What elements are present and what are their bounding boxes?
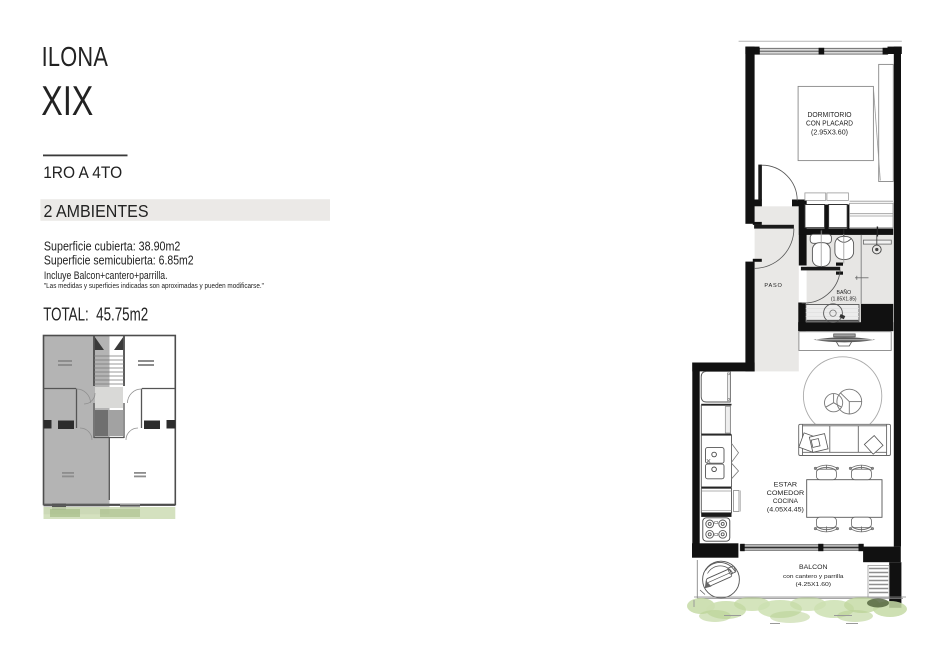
svg-text:2 AMBIENTES: 2 AMBIENTES — [44, 201, 149, 221]
svg-text:XIX: XIX — [41, 77, 93, 124]
svg-text:CON PLACARD: CON PLACARD — [806, 121, 853, 128]
svg-text:ILONA: ILONA — [42, 41, 109, 72]
svg-text:1RO A 4TO: 1RO A 4TO — [43, 163, 122, 182]
svg-text:"Las medidas y superficies ind: "Las medidas y superficies indicadas son… — [44, 281, 264, 290]
svg-text:ESTAR: ESTAR — [774, 482, 798, 489]
svg-text:DORMITORIO: DORMITORIO — [808, 112, 853, 119]
svg-text:BALCON: BALCON — [799, 564, 828, 571]
svg-text:(2.95X3.60): (2.95X3.60) — [811, 130, 848, 137]
svg-text:Superficie semicubierta: 6.85m: Superficie semicubierta: 6.85m2 — [44, 252, 194, 267]
svg-text:(4.25X1.60): (4.25X1.60) — [796, 582, 832, 588]
svg-text:COCINA: COCINA — [773, 498, 799, 505]
svg-text:(1.85X1.85): (1.85X1.85) — [831, 297, 857, 303]
svg-text:(4.05X4.45): (4.05X4.45) — [767, 507, 804, 514]
svg-text:PASO: PASO — [764, 283, 782, 289]
svg-text:COMEDOR: COMEDOR — [767, 490, 805, 497]
svg-text:con cantero y parrilla: con cantero y parrilla — [783, 574, 845, 580]
svg-text:Superficie cubierta: 38.90m2: Superficie cubierta: 38.90m2 — [44, 239, 181, 254]
svg-text:BAÑO: BAÑO — [837, 289, 852, 296]
svg-text:TOTAL: 45.75m2: TOTAL: 45.75m2 — [43, 305, 148, 325]
